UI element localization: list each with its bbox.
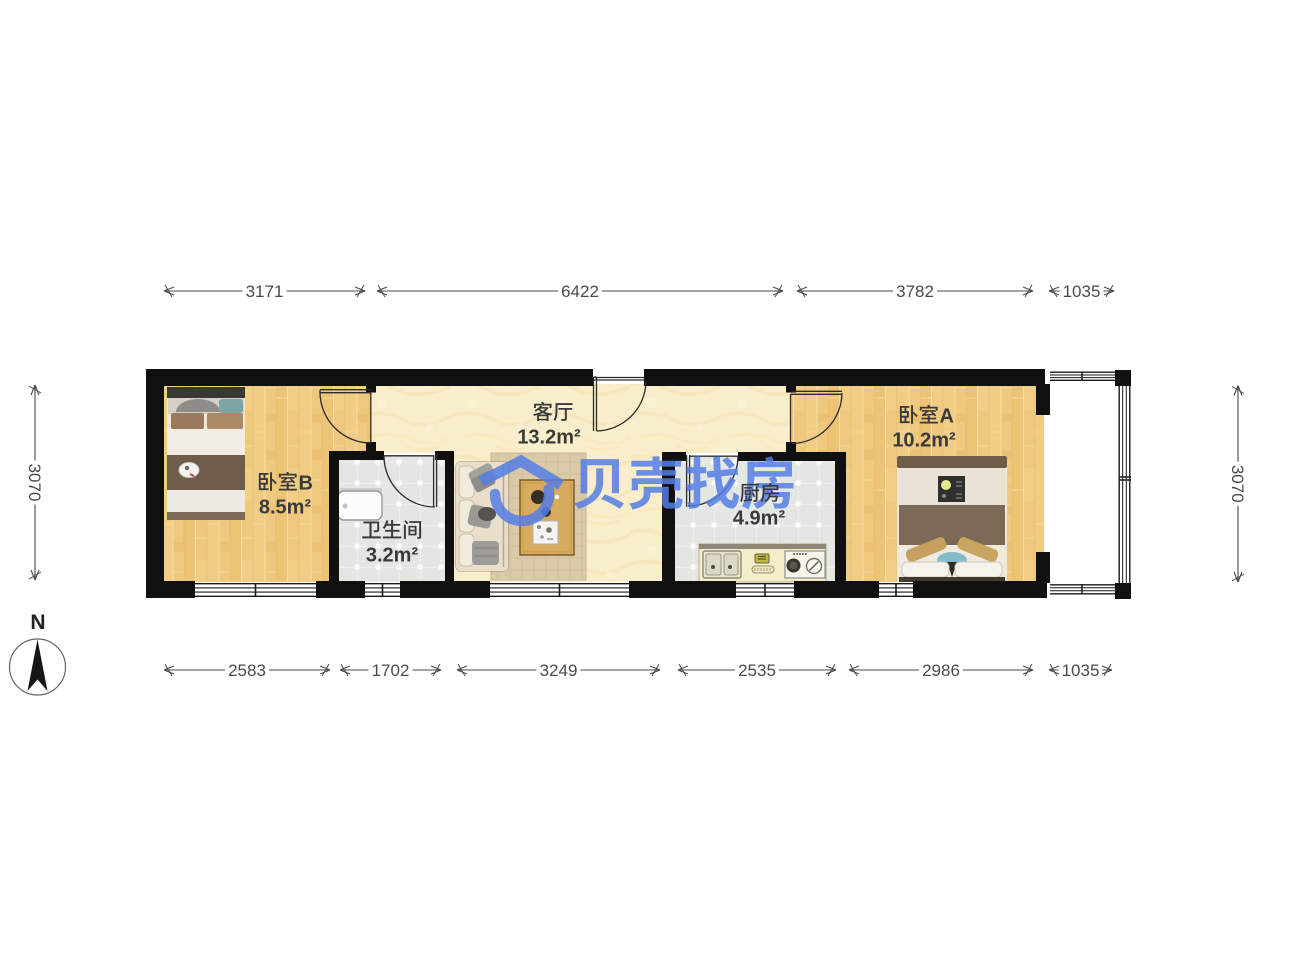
svg-text:13.2m²: 13.2m² <box>517 426 581 448</box>
svg-text:3782: 3782 <box>896 282 934 301</box>
svg-text:B: B <box>299 472 313 494</box>
svg-text:1035: 1035 <box>1063 282 1101 301</box>
svg-text:6422: 6422 <box>561 282 599 301</box>
svg-text:3070: 3070 <box>25 464 44 502</box>
svg-text:1702: 1702 <box>372 661 410 680</box>
svg-text:3249: 3249 <box>540 661 578 680</box>
svg-text:8.5m²: 8.5m² <box>259 496 312 518</box>
svg-text:2535: 2535 <box>738 661 776 680</box>
svg-text:10.2m²: 10.2m² <box>892 429 956 451</box>
svg-text:2583: 2583 <box>228 661 266 680</box>
svg-text:A: A <box>940 405 954 427</box>
svg-text:2986: 2986 <box>922 661 960 680</box>
svg-text:3070: 3070 <box>1228 465 1247 503</box>
svg-text:3.2m²: 3.2m² <box>366 544 419 566</box>
svg-text:3171: 3171 <box>246 282 284 301</box>
svg-text:1035: 1035 <box>1062 661 1100 680</box>
svg-text:4.9m²: 4.9m² <box>733 507 786 529</box>
svg-text:N: N <box>30 611 45 634</box>
